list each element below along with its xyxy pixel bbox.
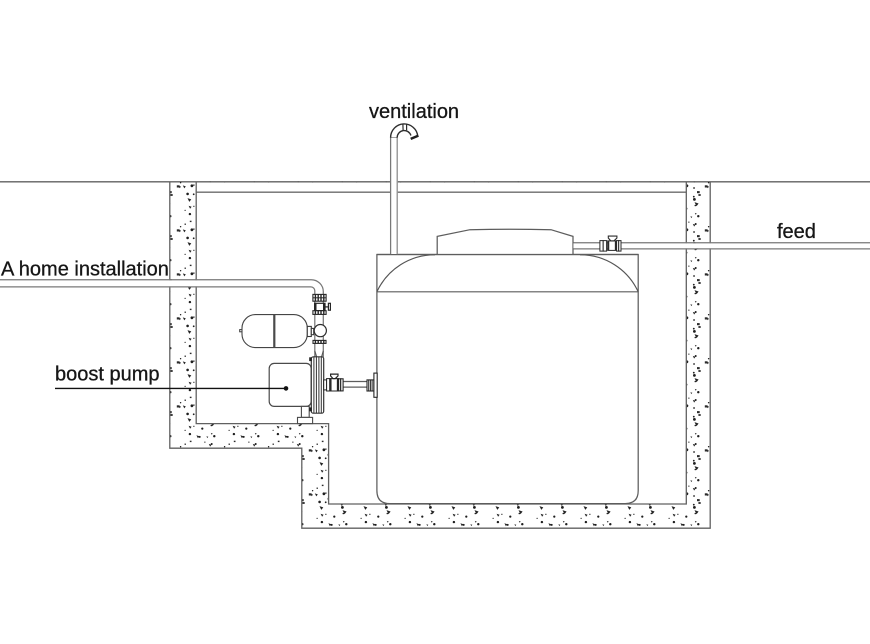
svg-text:boost pump: boost pump bbox=[55, 364, 160, 386]
svg-text:A home installation: A home installation bbox=[1, 258, 169, 280]
svg-text:feed: feed bbox=[777, 221, 816, 243]
svg-text:ventilation: ventilation bbox=[369, 101, 459, 123]
